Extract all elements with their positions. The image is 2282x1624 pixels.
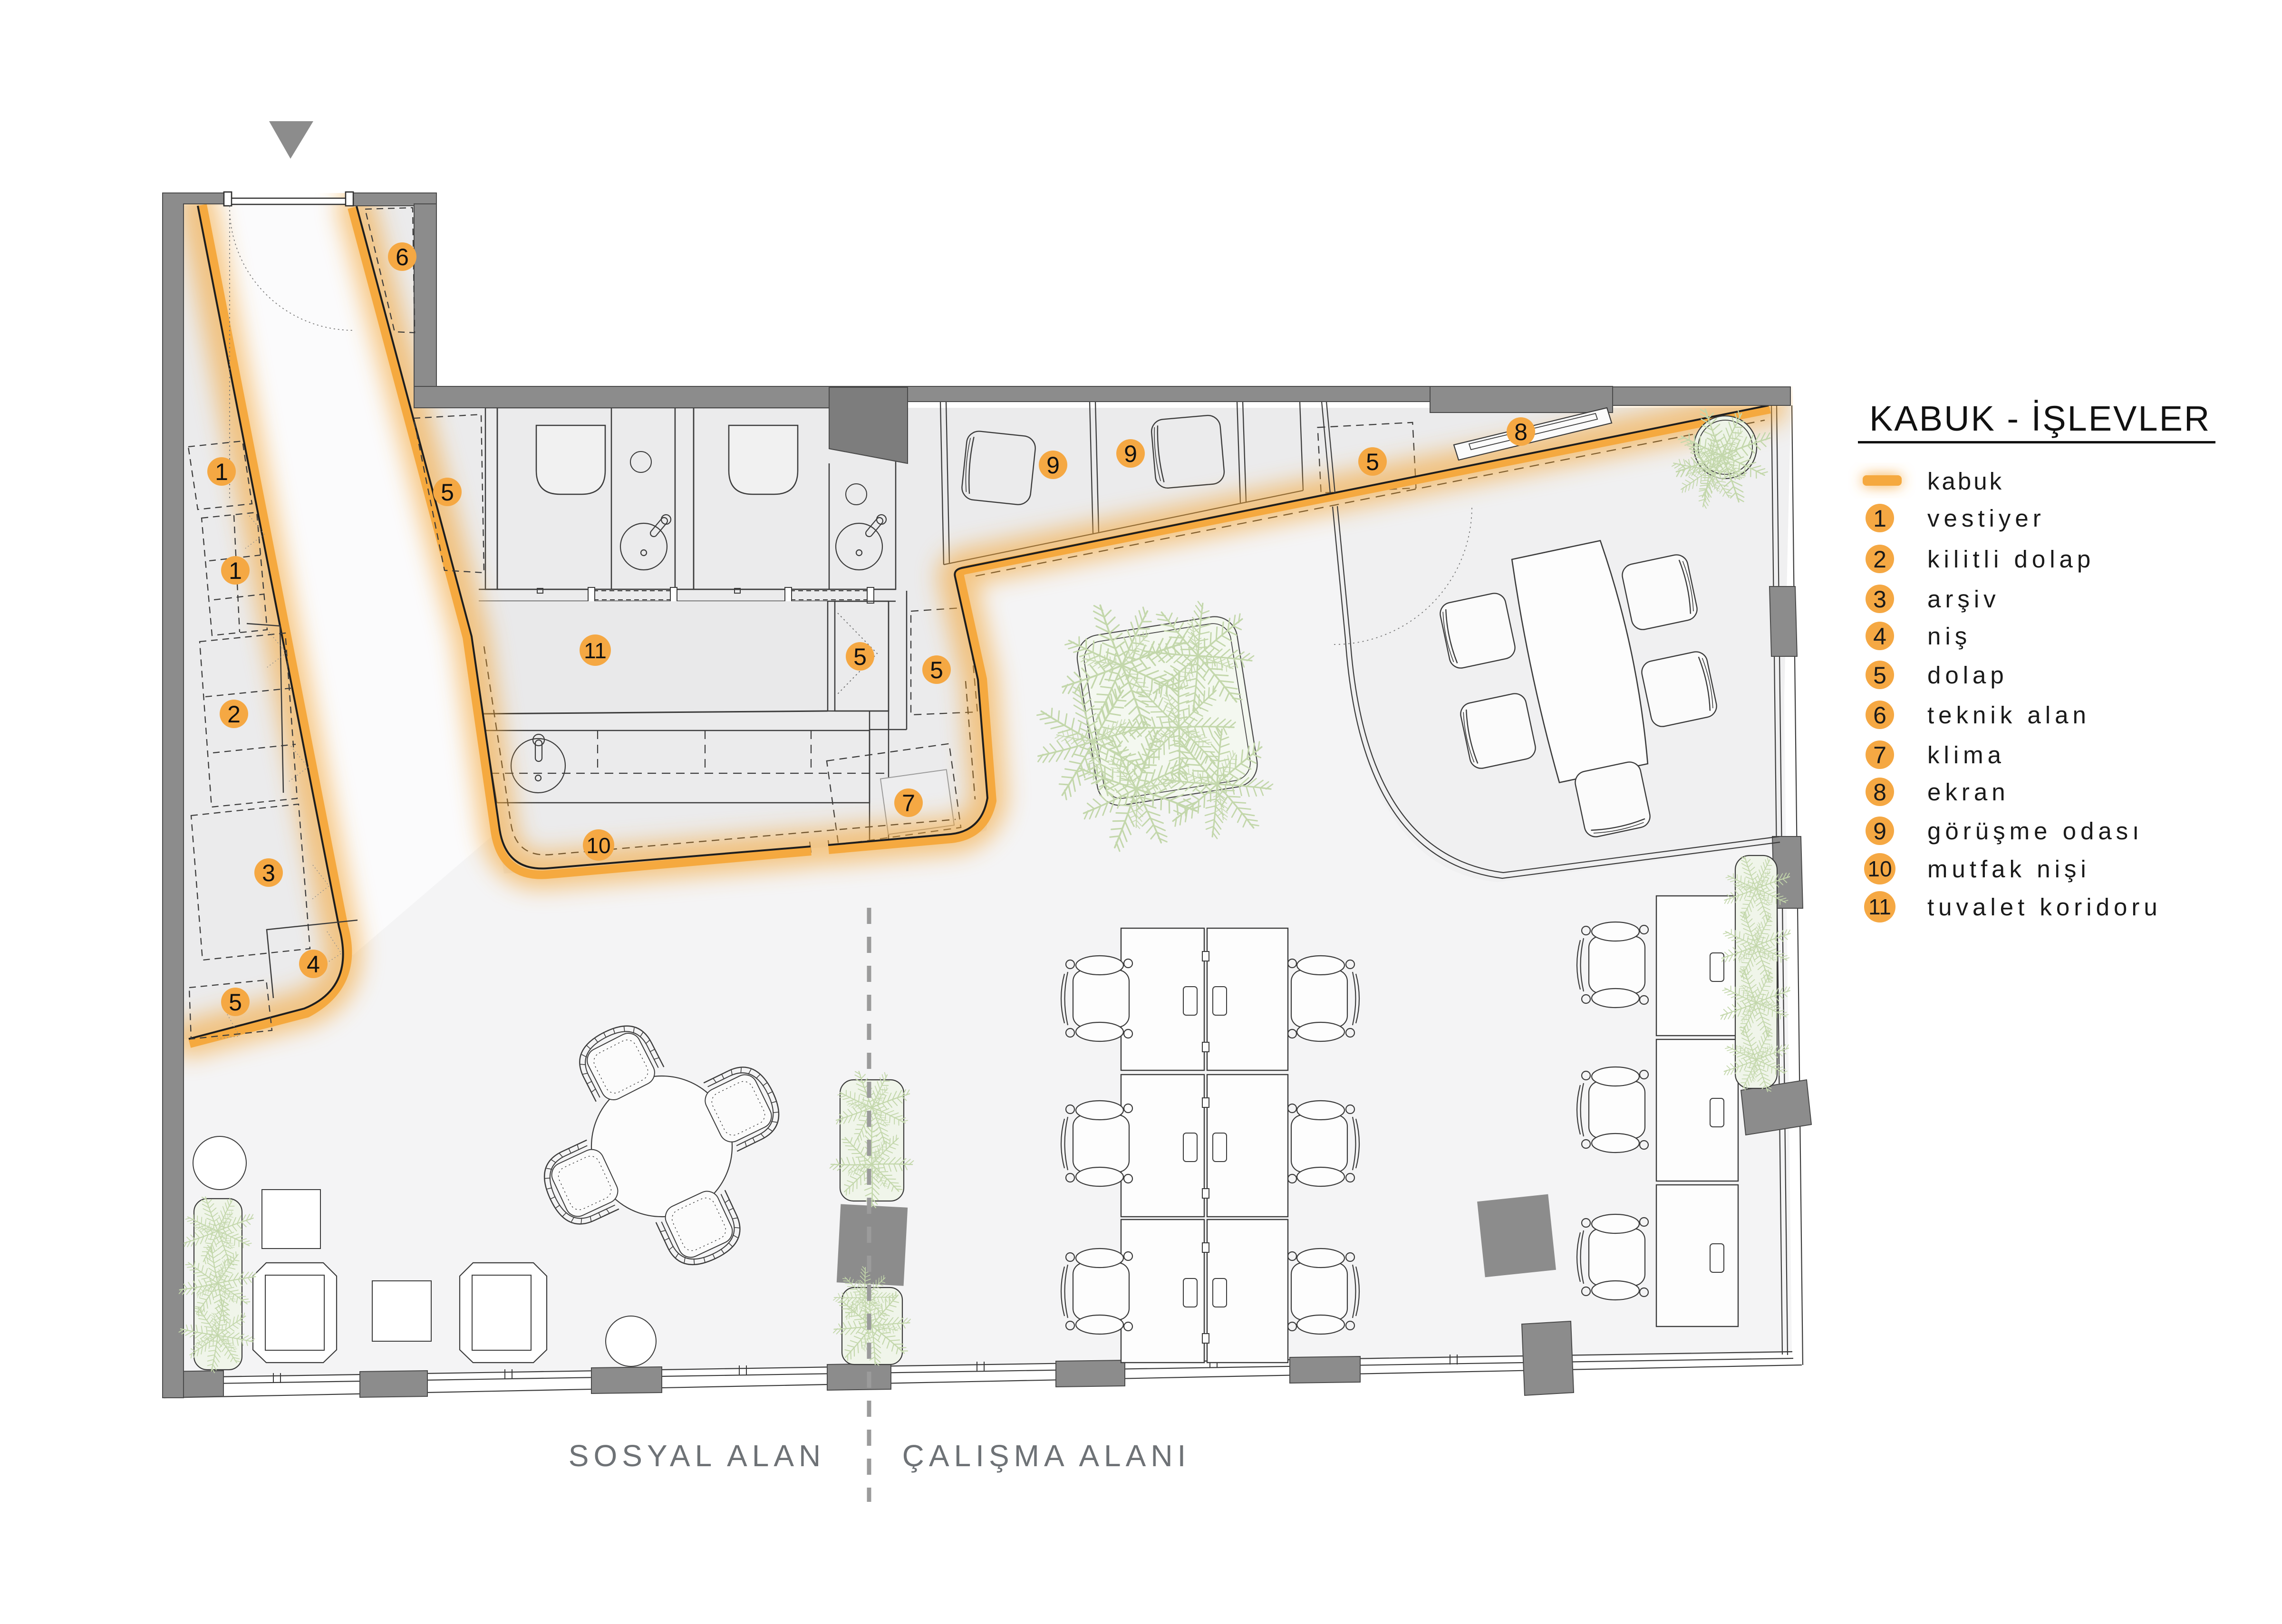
svg-text:mutfak nişi: mutfak nişi xyxy=(1927,855,2090,883)
svg-text:SOSYAL ALAN: SOSYAL ALAN xyxy=(569,1439,825,1473)
svg-text:5: 5 xyxy=(229,989,242,1016)
svg-text:4: 4 xyxy=(1873,623,1886,650)
svg-text:8: 8 xyxy=(1873,779,1886,806)
svg-text:4: 4 xyxy=(307,951,320,978)
svg-text:9: 9 xyxy=(1124,441,1137,467)
svg-text:2: 2 xyxy=(1873,546,1886,573)
svg-text:1: 1 xyxy=(215,459,228,485)
svg-text:1: 1 xyxy=(1873,505,1886,532)
svg-text:5: 5 xyxy=(853,644,867,670)
svg-text:10: 10 xyxy=(1867,856,1892,881)
svg-text:ekran: ekran xyxy=(1927,778,2010,806)
svg-text:5: 5 xyxy=(930,657,943,683)
svg-text:2: 2 xyxy=(227,701,241,728)
svg-text:10: 10 xyxy=(586,833,610,858)
svg-text:ÇALIŞMA ALANI: ÇALIŞMA ALANI xyxy=(902,1439,1191,1473)
svg-text:teknik alan: teknik alan xyxy=(1927,701,2090,729)
svg-text:5: 5 xyxy=(1366,449,1379,475)
svg-text:6: 6 xyxy=(1873,702,1886,729)
svg-text:6: 6 xyxy=(396,244,409,270)
svg-text:11: 11 xyxy=(1868,894,1891,919)
svg-text:dolap: dolap xyxy=(1927,662,2008,689)
svg-text:7: 7 xyxy=(902,790,915,817)
svg-text:tuvalet koridoru: tuvalet koridoru xyxy=(1927,894,2162,921)
svg-text:3: 3 xyxy=(262,860,275,886)
svg-text:5: 5 xyxy=(1873,662,1886,689)
svg-text:niş: niş xyxy=(1927,623,1971,650)
svg-text:9: 9 xyxy=(1873,818,1886,845)
svg-text:5: 5 xyxy=(441,479,454,506)
svg-text:görüşme odası: görüşme odası xyxy=(1927,817,2143,845)
svg-text:arşiv: arşiv xyxy=(1927,586,2000,613)
svg-text:3: 3 xyxy=(1873,586,1886,613)
svg-text:vestiyer: vestiyer xyxy=(1927,505,2045,532)
svg-text:KABUK - İŞLEVLER: KABUK - İŞLEVLER xyxy=(1869,399,2211,438)
svg-text:11: 11 xyxy=(584,638,607,663)
svg-text:klima: klima xyxy=(1927,741,2005,769)
svg-text:8: 8 xyxy=(1514,419,1528,445)
svg-text:kabuk: kabuk xyxy=(1927,468,2004,495)
svg-text:9: 9 xyxy=(1046,452,1060,479)
svg-text:kilitli dolap: kilitli dolap xyxy=(1927,546,2095,573)
svg-text:7: 7 xyxy=(1873,742,1886,769)
svg-text:1: 1 xyxy=(229,557,242,584)
